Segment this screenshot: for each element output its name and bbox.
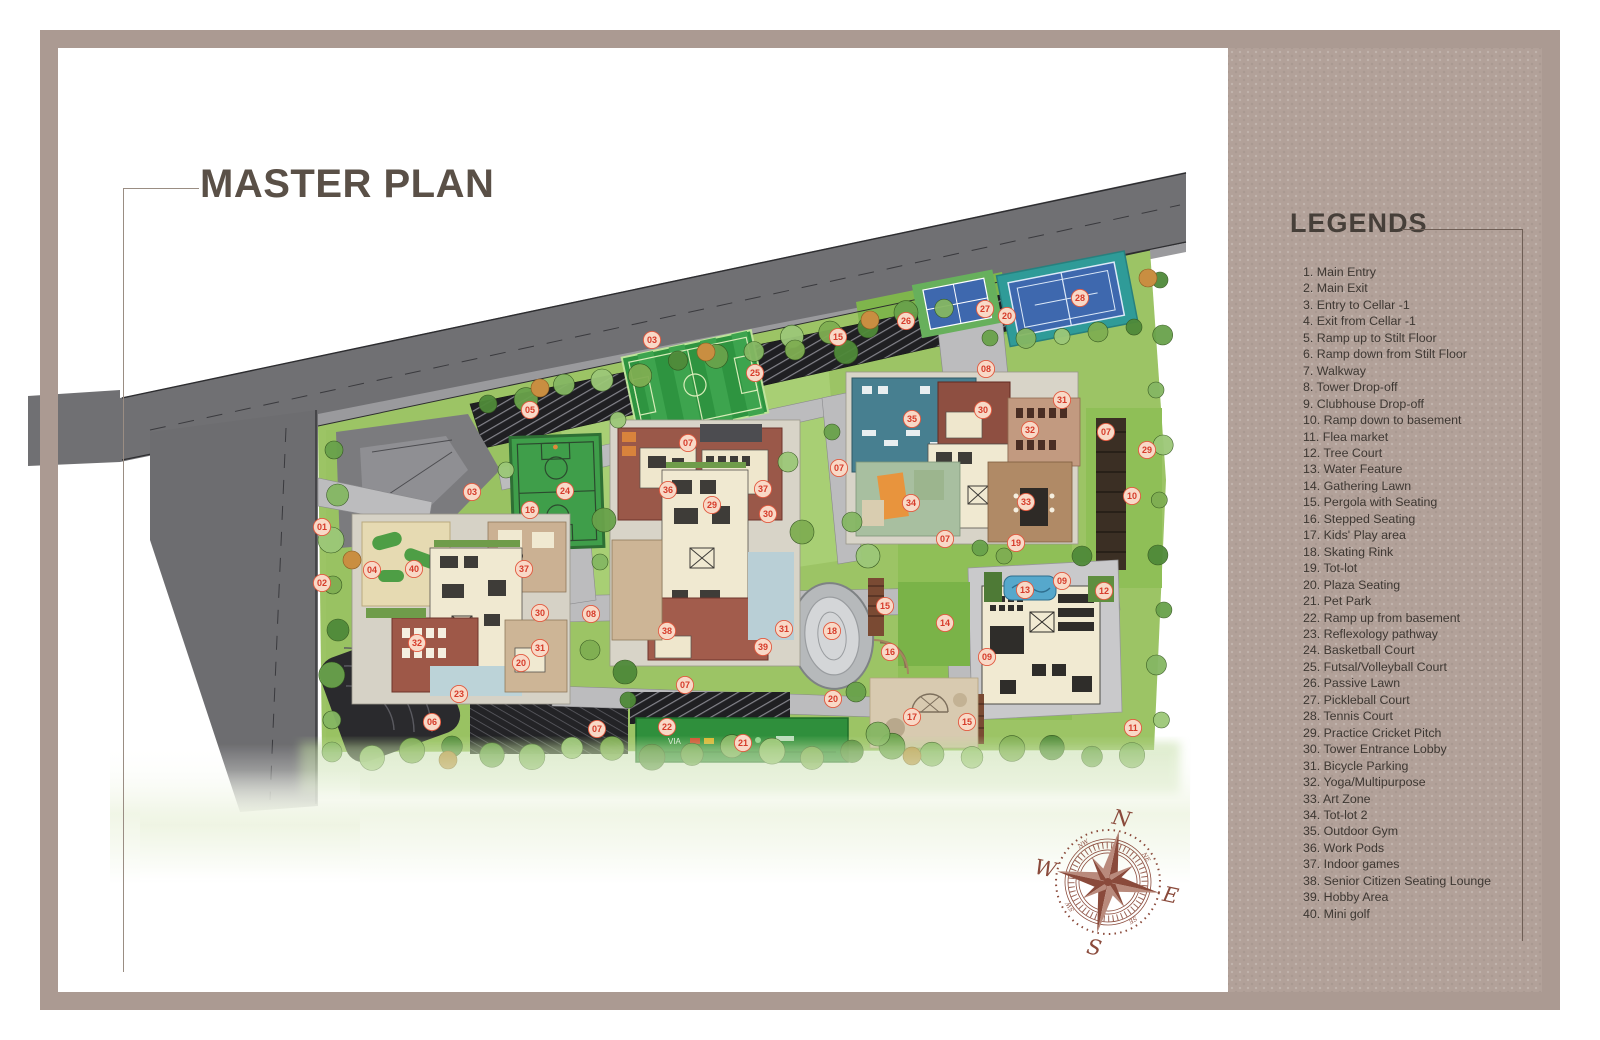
svg-text:39: 39 bbox=[758, 642, 768, 652]
tower-cluster-right bbox=[846, 372, 1080, 544]
map-marker-04: 04 bbox=[363, 561, 380, 578]
map-marker-09: 09 bbox=[1053, 572, 1070, 589]
svg-text:07: 07 bbox=[683, 438, 693, 448]
tree bbox=[1016, 328, 1036, 348]
tree bbox=[668, 351, 687, 370]
map-marker-40: 40 bbox=[405, 560, 422, 577]
map-marker-22: 22 bbox=[658, 718, 675, 735]
svg-text:29: 29 bbox=[1142, 445, 1152, 455]
compass-east-label: E bbox=[1160, 882, 1181, 909]
legend-item: 5. Ramp up to Stilt Floor bbox=[1303, 330, 1491, 346]
map-marker-29: 29 bbox=[703, 496, 720, 513]
svg-text:32: 32 bbox=[1025, 425, 1035, 435]
legend-item: 19. Tot-lot bbox=[1303, 560, 1491, 576]
svg-text:10: 10 bbox=[1127, 491, 1137, 501]
legend-item: 40. Mini golf bbox=[1303, 906, 1491, 922]
map-marker-36: 36 bbox=[659, 481, 676, 498]
tree bbox=[1126, 319, 1142, 335]
svg-text:16: 16 bbox=[525, 505, 535, 515]
map-marker-16: 16 bbox=[521, 501, 538, 518]
svg-text:07: 07 bbox=[592, 724, 602, 734]
legend-panel: LEGENDS 1. Main Entry2. Main Exit3. Entr… bbox=[1228, 48, 1542, 992]
legend-title: LEGENDS bbox=[1290, 208, 1428, 239]
svg-text:09: 09 bbox=[1057, 576, 1067, 586]
map-marker-34: 34 bbox=[902, 494, 919, 511]
map-marker-20: 20 bbox=[512, 654, 529, 671]
legend-bracket-line-vertical bbox=[1522, 229, 1523, 941]
map-marker-31: 31 bbox=[1053, 391, 1070, 408]
map-marker-17: 17 bbox=[903, 708, 920, 725]
legend-item: 36. Work Pods bbox=[1303, 840, 1491, 856]
map-marker-13: 13 bbox=[1016, 581, 1033, 598]
map-marker-32: 32 bbox=[408, 634, 425, 651]
svg-text:07: 07 bbox=[680, 680, 690, 690]
svg-text:15: 15 bbox=[880, 601, 890, 611]
tree bbox=[744, 342, 764, 362]
tree bbox=[1146, 655, 1166, 675]
svg-text:20: 20 bbox=[1002, 311, 1012, 321]
svg-text:31: 31 bbox=[779, 624, 789, 634]
svg-text:29: 29 bbox=[707, 500, 717, 510]
svg-text:32: 32 bbox=[412, 638, 422, 648]
svg-text:12: 12 bbox=[1099, 586, 1109, 596]
svg-text:03: 03 bbox=[647, 335, 657, 345]
svg-text:07: 07 bbox=[834, 463, 844, 473]
map-marker-39: 39 bbox=[754, 638, 771, 655]
svg-text:20: 20 bbox=[828, 694, 838, 704]
tree bbox=[327, 619, 349, 641]
tree bbox=[613, 660, 637, 684]
legend-item: 23. Reflexology pathway bbox=[1303, 626, 1491, 642]
legend-item: 12. Tree Court bbox=[1303, 445, 1491, 461]
svg-text:08: 08 bbox=[981, 364, 991, 374]
svg-text:37: 37 bbox=[519, 564, 529, 574]
map-marker-05: 05 bbox=[521, 401, 538, 418]
map-marker-37: 37 bbox=[754, 480, 771, 497]
map-marker-19: 19 bbox=[1007, 534, 1024, 551]
svg-text:07: 07 bbox=[1101, 427, 1111, 437]
tree bbox=[628, 364, 651, 387]
map-marker-06: 06 bbox=[423, 713, 440, 730]
svg-text:02: 02 bbox=[317, 578, 327, 588]
svg-text:04: 04 bbox=[367, 565, 377, 575]
tree bbox=[842, 512, 862, 532]
tree bbox=[1148, 382, 1164, 398]
tree bbox=[935, 299, 954, 318]
svg-text:09: 09 bbox=[982, 652, 992, 662]
map-marker-07: 07 bbox=[676, 676, 693, 693]
legend-item: 6. Ramp down from Stilt Floor bbox=[1303, 346, 1491, 362]
map-marker-12: 12 bbox=[1095, 582, 1112, 599]
tree bbox=[972, 540, 988, 556]
map-marker-08: 08 bbox=[582, 605, 599, 622]
svg-text:30: 30 bbox=[535, 608, 545, 618]
svg-text:33: 33 bbox=[1021, 497, 1031, 507]
legend-item: 15. Pergola with Seating bbox=[1303, 494, 1491, 510]
map-marker-03: 03 bbox=[463, 483, 480, 500]
tree bbox=[479, 395, 497, 413]
map-marker-16: 16 bbox=[881, 643, 898, 660]
map-marker-30: 30 bbox=[974, 401, 991, 418]
map-marker-31: 31 bbox=[775, 620, 792, 637]
map-marker-27: 27 bbox=[976, 300, 993, 317]
svg-text:31: 31 bbox=[1057, 395, 1067, 405]
svg-text:31: 31 bbox=[535, 643, 545, 653]
map-marker-15: 15 bbox=[829, 328, 846, 345]
legend-item: 2. Main Exit bbox=[1303, 280, 1491, 296]
svg-text:30: 30 bbox=[978, 405, 988, 415]
map-marker-07: 07 bbox=[588, 720, 605, 737]
legend-item: 18. Skating Rink bbox=[1303, 544, 1491, 560]
tree bbox=[591, 369, 613, 391]
tree bbox=[610, 412, 626, 428]
tree bbox=[498, 462, 514, 478]
tree bbox=[790, 520, 814, 544]
legend-item: 20. Plaza Seating bbox=[1303, 577, 1491, 593]
legend-item: 3. Entry to Cellar -1 bbox=[1303, 297, 1491, 313]
tree bbox=[620, 692, 636, 708]
legend-item: 30. Tower Entrance Lobby bbox=[1303, 741, 1491, 757]
legend-item: 10. Ramp down to basement bbox=[1303, 412, 1491, 428]
legend-item: 27. Pickleball Court bbox=[1303, 692, 1491, 708]
tree-autumn bbox=[531, 379, 549, 397]
svg-text:35: 35 bbox=[907, 414, 917, 424]
tree bbox=[1088, 322, 1108, 342]
svg-text:18: 18 bbox=[827, 626, 837, 636]
map-marker-31: 31 bbox=[531, 639, 548, 656]
svg-text:34: 34 bbox=[906, 498, 916, 508]
tree bbox=[778, 452, 798, 472]
legend-bracket-line bbox=[1402, 229, 1522, 230]
map-marker-29: 29 bbox=[1138, 441, 1155, 458]
map-marker-20: 20 bbox=[824, 690, 841, 707]
svg-text:40: 40 bbox=[409, 564, 419, 574]
svg-text:22: 22 bbox=[662, 722, 672, 732]
map-marker-20: 20 bbox=[998, 307, 1015, 324]
legend-item: 7. Walkway bbox=[1303, 363, 1491, 379]
tree bbox=[1054, 328, 1070, 344]
map-marker-07: 07 bbox=[936, 530, 953, 547]
legend-item: 22. Ramp up from basement bbox=[1303, 610, 1491, 626]
legend-item: 32. Yoga/Multipurpose bbox=[1303, 774, 1491, 790]
tree bbox=[325, 441, 343, 459]
svg-text:19: 19 bbox=[1011, 538, 1021, 548]
tree-autumn bbox=[697, 343, 715, 361]
map-marker-02: 02 bbox=[313, 574, 330, 591]
map-marker-30: 30 bbox=[759, 505, 776, 522]
map-marker-32: 32 bbox=[1021, 421, 1038, 438]
tree-autumn bbox=[343, 551, 361, 569]
map-marker-25: 25 bbox=[746, 364, 763, 381]
svg-text:16: 16 bbox=[885, 647, 895, 657]
legend-item: 13. Water Feature bbox=[1303, 461, 1491, 477]
svg-text:26: 26 bbox=[901, 316, 911, 326]
legend-item: 17. Kids' Play area bbox=[1303, 527, 1491, 543]
legend-item: 35. Outdoor Gym bbox=[1303, 823, 1491, 839]
tree bbox=[323, 711, 341, 729]
map-marker-21: 21 bbox=[734, 734, 751, 751]
svg-text:15: 15 bbox=[962, 717, 972, 727]
svg-text:30: 30 bbox=[763, 509, 773, 519]
tree bbox=[592, 554, 608, 570]
svg-text:03: 03 bbox=[467, 487, 477, 497]
legend-item: 31. Bicycle Parking bbox=[1303, 758, 1491, 774]
legend-item: 29. Practice Cricket Pitch bbox=[1303, 725, 1491, 741]
map-marker-24: 24 bbox=[556, 482, 573, 499]
legend-item: 37. Indoor games bbox=[1303, 856, 1491, 872]
legend-item: 11. Flea market bbox=[1303, 429, 1491, 445]
map-marker-28: 28 bbox=[1071, 289, 1088, 306]
svg-text:08: 08 bbox=[586, 609, 596, 619]
map-marker-14: 14 bbox=[936, 614, 953, 631]
legend-item: 14. Gathering Lawn bbox=[1303, 478, 1491, 494]
svg-text:37: 37 bbox=[758, 484, 768, 494]
legend-item: 24. Basketball Court bbox=[1303, 642, 1491, 658]
tree bbox=[1072, 546, 1092, 566]
title-bracket-line-vertical bbox=[123, 188, 124, 972]
tree bbox=[856, 544, 880, 568]
map-marker-35: 35 bbox=[903, 410, 920, 427]
map-marker-33: 33 bbox=[1017, 493, 1034, 510]
title-bracket-line bbox=[123, 188, 199, 189]
svg-text:21: 21 bbox=[738, 738, 748, 748]
map-marker-23: 23 bbox=[450, 685, 467, 702]
tree bbox=[1156, 602, 1172, 618]
svg-text:15: 15 bbox=[833, 332, 843, 342]
tree bbox=[327, 484, 349, 506]
map-marker-09: 09 bbox=[978, 648, 995, 665]
legend-item: 25. Futsal/Volleyball Court bbox=[1303, 659, 1491, 675]
legend-item: 21. Pet Park bbox=[1303, 593, 1491, 609]
legend-item: 28. Tennis Court bbox=[1303, 708, 1491, 724]
legend-item: 26. Passive Lawn bbox=[1303, 675, 1491, 691]
tree bbox=[592, 508, 616, 532]
svg-text:17: 17 bbox=[907, 712, 917, 722]
svg-text:25: 25 bbox=[750, 368, 760, 378]
map-marker-07: 07 bbox=[1097, 423, 1114, 440]
map-marker-38: 38 bbox=[658, 622, 675, 639]
legend-item: 9. Clubhouse Drop-off bbox=[1303, 396, 1491, 412]
svg-text:14: 14 bbox=[940, 618, 950, 628]
map-marker-18: 18 bbox=[823, 622, 840, 639]
svg-text:06: 06 bbox=[427, 717, 437, 727]
svg-text:07: 07 bbox=[940, 534, 950, 544]
legend-item: 34. Tot-lot 2 bbox=[1303, 807, 1491, 823]
svg-text:13: 13 bbox=[1020, 585, 1030, 595]
map-marker-37: 37 bbox=[515, 560, 532, 577]
svg-text:27: 27 bbox=[980, 304, 990, 314]
tree bbox=[554, 374, 575, 395]
map-marker-15: 15 bbox=[958, 713, 975, 730]
legend-item: 4. Exit from Cellar -1 bbox=[1303, 313, 1491, 329]
tree bbox=[996, 548, 1012, 564]
tower-cluster-middle bbox=[610, 420, 800, 666]
svg-text:38: 38 bbox=[662, 626, 672, 636]
tree-autumn bbox=[861, 311, 879, 329]
map-marker-10: 10 bbox=[1123, 487, 1140, 504]
legend-item: 33. Art Zone bbox=[1303, 791, 1491, 807]
svg-text:28: 28 bbox=[1075, 293, 1085, 303]
map-marker-08: 08 bbox=[977, 360, 994, 377]
legend-item: 1. Main Entry bbox=[1303, 264, 1491, 280]
svg-text:01: 01 bbox=[317, 522, 327, 532]
compass-south-label: S bbox=[1085, 934, 1104, 960]
master-plan-page: VIA bbox=[0, 0, 1600, 1040]
legend-item: 39. Hobby Area bbox=[1303, 889, 1491, 905]
map-marker-03: 03 bbox=[643, 331, 660, 348]
tree bbox=[785, 340, 805, 360]
svg-text:05: 05 bbox=[525, 405, 535, 415]
map-marker-07: 07 bbox=[830, 459, 847, 476]
tree bbox=[982, 330, 998, 346]
tree bbox=[1153, 325, 1173, 345]
tree-autumn bbox=[1139, 269, 1157, 287]
tree bbox=[1153, 435, 1173, 455]
map-marker-11: 11 bbox=[1124, 719, 1141, 736]
tree bbox=[846, 682, 866, 702]
map-marker-15: 15 bbox=[876, 597, 893, 614]
tree bbox=[319, 662, 345, 688]
legend-item: 8. Tower Drop-off bbox=[1303, 379, 1491, 395]
svg-text:36: 36 bbox=[663, 485, 673, 495]
svg-text:20: 20 bbox=[516, 658, 526, 668]
svg-text:11: 11 bbox=[1128, 723, 1138, 733]
tree bbox=[1148, 545, 1168, 565]
tree bbox=[1151, 492, 1167, 508]
tree bbox=[824, 424, 840, 440]
legend-item: 16. Stepped Seating bbox=[1303, 511, 1491, 527]
map-marker-26: 26 bbox=[897, 312, 914, 329]
tree bbox=[580, 640, 600, 660]
legend-item: 38. Senior Citizen Seating Lounge bbox=[1303, 873, 1491, 889]
map-marker-07: 07 bbox=[679, 434, 696, 451]
legend-list: 1. Main Entry2. Main Exit3. Entry to Cel… bbox=[1303, 264, 1491, 922]
tree bbox=[1153, 712, 1169, 728]
svg-text:23: 23 bbox=[454, 689, 464, 699]
map-marker-30: 30 bbox=[531, 604, 548, 621]
page-title: MASTER PLAN bbox=[200, 162, 494, 207]
svg-text:24: 24 bbox=[560, 486, 570, 496]
map-marker-01: 01 bbox=[313, 518, 330, 535]
